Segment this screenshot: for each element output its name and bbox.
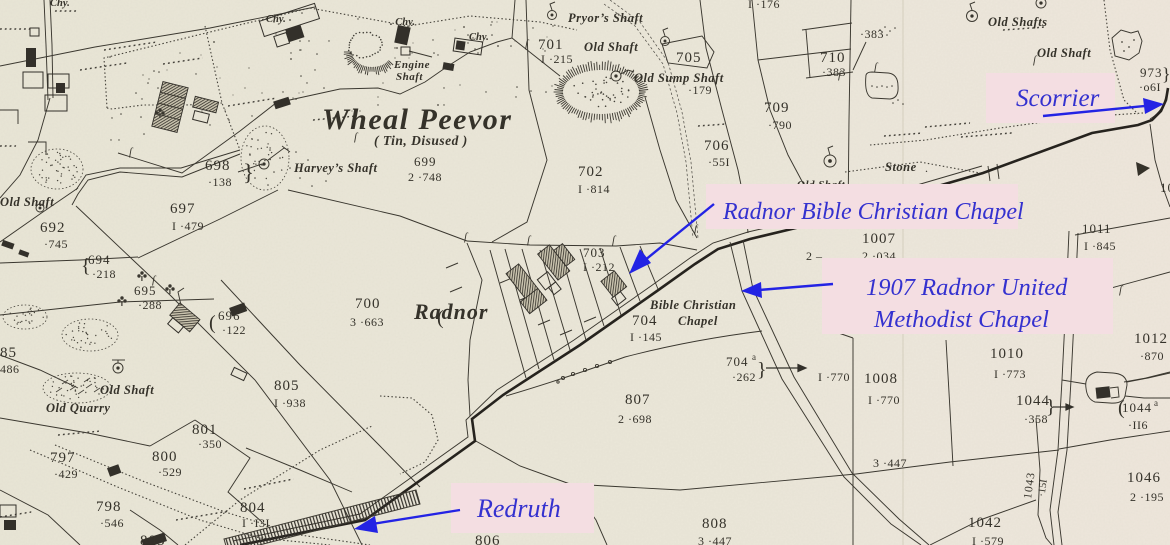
svg-text:}: } — [757, 359, 767, 381]
svg-text:3 ·447: 3 ·447 — [698, 534, 732, 545]
svg-text:Old Shaft: Old Shaft — [1037, 46, 1091, 60]
svg-text:Old Shaft: Old Shaft — [584, 40, 638, 54]
svg-text:Engine: Engine — [393, 59, 430, 71]
svg-text:( Tin, Disused ): ( Tin, Disused ) — [374, 133, 468, 148]
svg-text:1011: 1011 — [1082, 221, 1112, 236]
svg-text:85: 85 — [0, 345, 17, 361]
svg-text:1008: 1008 — [864, 371, 898, 387]
svg-text:I ·215: I ·215 — [541, 52, 573, 66]
svg-text:·55I: ·55I — [708, 155, 730, 169]
svg-text:1042: 1042 — [968, 515, 1002, 531]
svg-text:(: ( — [209, 312, 216, 334]
svg-text:I ·176: I ·176 — [748, 0, 780, 11]
svg-text:Bible Christian: Bible Christian — [649, 298, 736, 312]
svg-text:1044: 1044 — [1016, 393, 1050, 409]
svg-text:973: 973 — [1140, 65, 1163, 80]
svg-text:Old Shaft: Old Shaft — [0, 195, 54, 209]
svg-text:Scorrier: Scorrier — [1016, 85, 1100, 112]
svg-text:I ·814: I ·814 — [578, 182, 610, 196]
svg-text:·383: ·383 — [822, 65, 846, 79]
svg-text:Stone: Stone — [885, 160, 917, 174]
svg-text:Shaft: Shaft — [396, 71, 423, 83]
svg-text:696: 696 — [218, 308, 241, 323]
svg-text:I ·479: I ·479 — [172, 219, 204, 233]
svg-text:}: } — [1162, 64, 1170, 84]
svg-text:699: 699 — [414, 154, 437, 169]
svg-text:Radnor: Radnor — [413, 299, 488, 324]
svg-text:I ·845: I ·845 — [1084, 239, 1116, 253]
svg-text:·529: ·529 — [158, 465, 182, 479]
svg-text:·138: ·138 — [208, 175, 232, 189]
svg-text:·790: ·790 — [768, 118, 792, 132]
svg-text:·546: ·546 — [100, 516, 124, 530]
svg-text:a: a — [1154, 398, 1159, 408]
svg-text:803: 803 — [140, 533, 166, 545]
svg-text:1012: 1012 — [1134, 331, 1168, 347]
svg-text:}: } — [243, 160, 254, 185]
svg-text:804: 804 — [240, 500, 266, 516]
svg-text:702: 702 — [578, 164, 604, 180]
svg-text:Redruth: Redruth — [476, 494, 561, 523]
svg-text:701: 701 — [538, 37, 564, 53]
svg-text:Chy.: Chy. — [266, 14, 286, 25]
svg-text:·288: ·288 — [138, 298, 162, 312]
svg-text:·429: ·429 — [54, 467, 78, 481]
svg-text:·122: ·122 — [222, 323, 246, 337]
svg-text:2 ·748: 2 ·748 — [408, 170, 442, 184]
svg-text:I ·773: I ·773 — [994, 367, 1026, 381]
svg-text:I ·938: I ·938 — [274, 396, 306, 410]
svg-text:. Chy.: . Chy. — [390, 17, 415, 28]
svg-text:I ·579: I ·579 — [972, 534, 1004, 545]
svg-text:697: 697 — [170, 201, 196, 217]
svg-text:Old Quarry: Old Quarry — [46, 401, 110, 415]
svg-text:Old Shafts: Old Shafts — [988, 15, 1048, 29]
svg-text:3 ·663: 3 ·663 — [350, 315, 384, 329]
svg-text:Harvey’s Shaft: Harvey’s Shaft — [293, 161, 378, 175]
svg-text:·262: ·262 — [732, 370, 756, 384]
svg-text:·745: ·745 — [44, 237, 68, 251]
svg-text:Radnor Bible Christian Chapel: Radnor Bible Christian Chapel — [722, 199, 1024, 225]
svg-text:·870: ·870 — [1140, 349, 1164, 363]
svg-text:692: 692 — [40, 220, 66, 236]
svg-text:·358: ·358 — [1024, 412, 1048, 426]
svg-text:698: 698 — [205, 158, 231, 174]
svg-text:704: 704 — [726, 354, 749, 369]
svg-text:·218: ·218 — [92, 267, 116, 281]
svg-text:·350: ·350 — [198, 437, 222, 451]
svg-text:Old Shaft: Old Shaft — [100, 383, 154, 397]
svg-text:Chy.: Chy. — [50, 0, 70, 9]
svg-text:805: 805 — [274, 378, 300, 394]
svg-text:2 –: 2 – — [806, 249, 823, 263]
svg-text:Pryor’s Shaft: Pryor’s Shaft — [568, 11, 643, 25]
svg-text:801: 801 — [192, 422, 218, 438]
svg-text:705: 705 — [676, 50, 702, 66]
svg-text:1010: 1010 — [990, 346, 1024, 362]
svg-text:486: 486 — [0, 362, 20, 376]
svg-text:1046: 1046 — [1127, 470, 1161, 486]
svg-text:807: 807 — [625, 392, 651, 408]
svg-text:2 ·195: 2 ·195 — [1130, 490, 1164, 504]
svg-text:·o6I: ·o6I — [1139, 80, 1161, 94]
svg-text:808: 808 — [702, 516, 728, 532]
svg-text:I ·770: I ·770 — [868, 393, 900, 407]
svg-text:798: 798 — [96, 499, 122, 515]
svg-text:Wheal Peevor: Wheal Peevor — [322, 103, 512, 136]
svg-text:700: 700 — [355, 296, 381, 312]
svg-text:694: 694 — [88, 252, 111, 267]
svg-text:Chy.: Chy. — [469, 32, 489, 43]
svg-text:1907 Radnor United: 1907 Radnor United — [866, 274, 1068, 301]
svg-text:a: a — [752, 352, 757, 362]
svg-text:704: 704 — [632, 313, 658, 329]
svg-text:709: 709 — [764, 100, 790, 116]
svg-text:I ·145: I ·145 — [630, 330, 662, 344]
svg-text:Methodist Chapel: Methodist Chapel — [873, 306, 1049, 333]
svg-text:10: 10 — [1160, 180, 1170, 195]
svg-text:703: 703 — [583, 245, 606, 260]
svg-text:800: 800 — [152, 449, 178, 465]
svg-text:1007: 1007 — [862, 231, 896, 247]
svg-text:I ·212: I ·212 — [583, 260, 615, 274]
svg-text:Chapel: Chapel — [678, 314, 718, 328]
svg-text:2 ·698: 2 ·698 — [618, 412, 652, 426]
svg-text:·II6: ·II6 — [1128, 418, 1148, 432]
svg-text:·179: ·179 — [688, 83, 712, 97]
svg-text:I ·I3I: I ·I3I — [242, 516, 270, 530]
svg-text:·383: ·383 — [860, 27, 884, 41]
svg-text:710: 710 — [820, 50, 846, 66]
svg-text:1044: 1044 — [1122, 400, 1152, 415]
svg-text:I ·770: I ·770 — [818, 370, 850, 384]
svg-text:797: 797 — [50, 450, 76, 466]
svg-text:.: . — [925, 161, 929, 175]
svg-text:706: 706 — [704, 138, 730, 154]
svg-text:3 ·447: 3 ·447 — [873, 456, 907, 470]
svg-text:806: 806 — [475, 533, 501, 545]
